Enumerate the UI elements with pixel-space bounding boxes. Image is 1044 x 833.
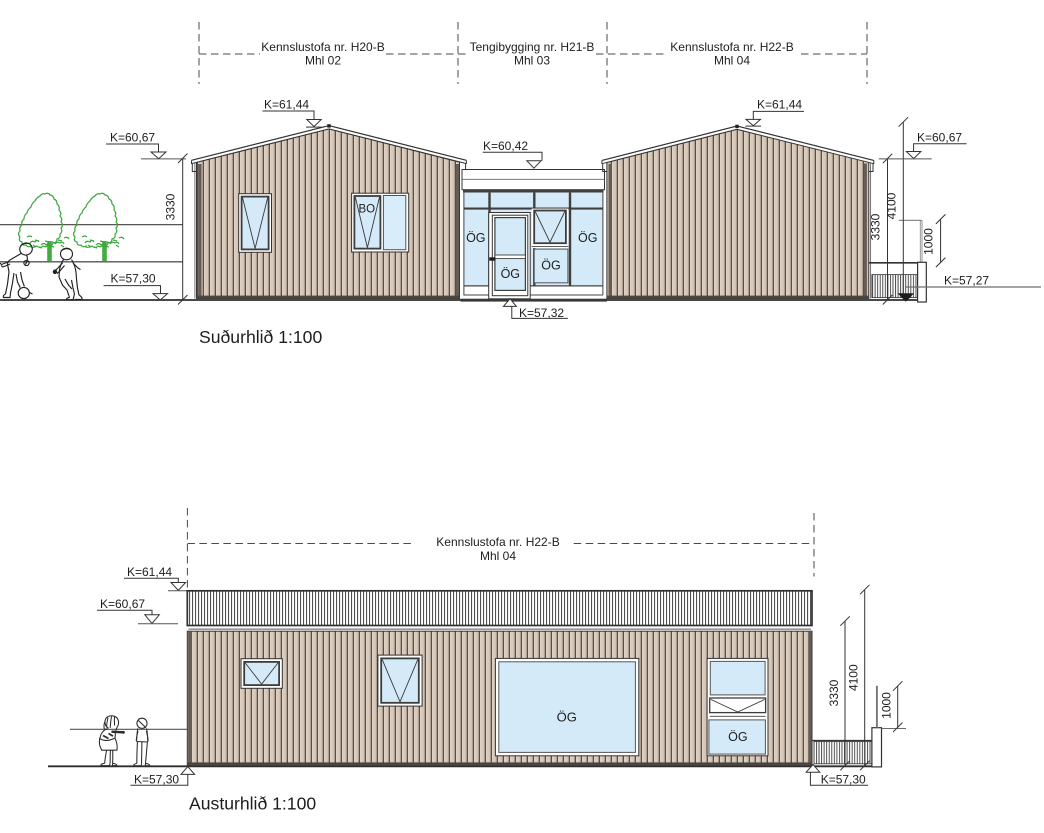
svg-text:1000: 1000 — [922, 228, 936, 255]
svg-text:K=57,30: K=57,30 — [111, 272, 156, 286]
svg-text:ÖG: ÖG — [728, 730, 747, 744]
svg-text:Suðurhlið 1:100: Suðurhlið 1:100 — [199, 327, 322, 347]
svg-text:Mhl 03: Mhl 03 — [514, 54, 550, 68]
svg-text:K=61,44: K=61,44 — [757, 98, 802, 112]
svg-text:BO: BO — [359, 204, 376, 216]
svg-text:Kennslustofa nr. H22-B: Kennslustofa nr. H22-B — [436, 535, 559, 549]
svg-text:ÖG: ÖG — [557, 710, 577, 725]
svg-text:K=61,44: K=61,44 — [127, 565, 172, 579]
svg-text:Kennslustofa nr. H20-B: Kennslustofa nr. H20-B — [261, 40, 384, 54]
svg-text:K=57,30: K=57,30 — [134, 772, 179, 786]
svg-text:Tengibygging nr. H21-B: Tengibygging nr. H21-B — [470, 40, 595, 54]
svg-text:ÖG: ÖG — [466, 231, 485, 245]
svg-text:ÖG: ÖG — [578, 231, 597, 245]
svg-text:3330: 3330 — [869, 213, 883, 240]
svg-text:Kennslustofa nr. H22-B: Kennslustofa nr. H22-B — [670, 40, 793, 54]
svg-text:4100: 4100 — [847, 664, 861, 691]
svg-text:ÖG: ÖG — [541, 259, 560, 273]
svg-text:K=60,67: K=60,67 — [100, 597, 145, 611]
svg-text:1000: 1000 — [879, 692, 893, 719]
svg-text:3330: 3330 — [827, 679, 841, 706]
svg-text:Austurhlið 1:100: Austurhlið 1:100 — [189, 794, 316, 814]
svg-text:Mhl 02: Mhl 02 — [305, 54, 341, 68]
svg-text:K=57,30: K=57,30 — [821, 772, 866, 786]
svg-text:4100: 4100 — [884, 192, 898, 219]
svg-text:Mhl 04: Mhl 04 — [714, 54, 750, 68]
svg-text:ÖG: ÖG — [501, 267, 520, 281]
svg-text:K=61,44: K=61,44 — [264, 98, 309, 112]
svg-text:K=60,67: K=60,67 — [110, 131, 155, 145]
svg-text:K=60,67: K=60,67 — [917, 131, 962, 145]
svg-text:K=57,27: K=57,27 — [944, 273, 989, 287]
svg-text:K=57,32: K=57,32 — [519, 306, 564, 320]
svg-text:K=60,42: K=60,42 — [483, 139, 528, 153]
svg-text:3330: 3330 — [164, 193, 178, 220]
svg-text:Mhl 04: Mhl 04 — [480, 549, 516, 563]
